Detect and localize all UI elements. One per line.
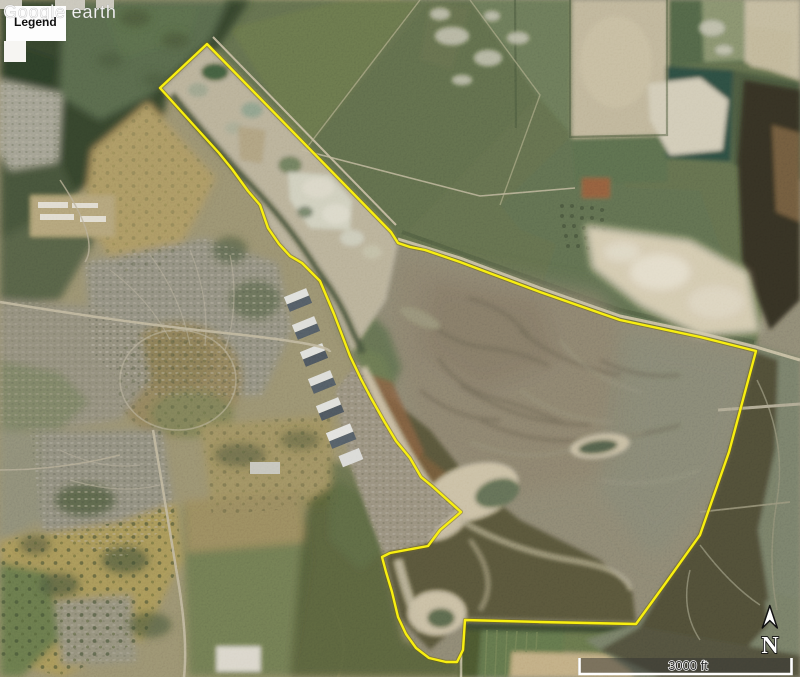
svg-text:3000 ft: 3000 ft: [668, 658, 708, 673]
svg-text:N: N: [761, 633, 779, 659]
